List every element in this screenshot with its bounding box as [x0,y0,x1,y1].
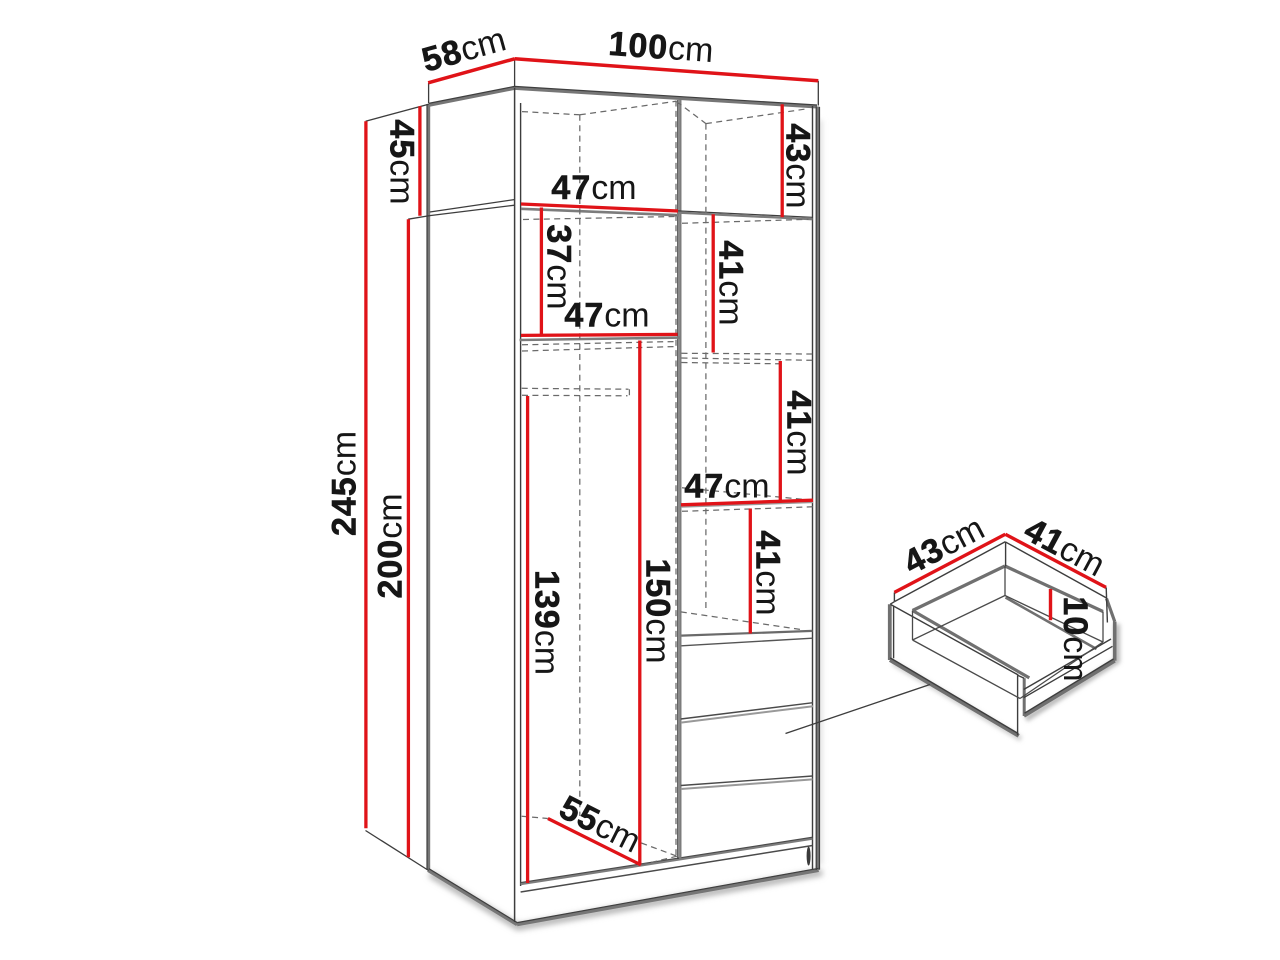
svg-text:41cm: 41cm [712,240,750,325]
svg-text:41cm: 41cm [780,390,818,475]
svg-text:47cm: 47cm [551,169,636,207]
svg-text:43cm: 43cm [779,123,817,208]
svg-text:200cm: 200cm [371,493,409,598]
svg-text:139cm: 139cm [528,570,566,675]
svg-text:100cm: 100cm [607,25,714,70]
svg-text:47cm: 47cm [684,468,769,506]
svg-text:150cm: 150cm [639,558,677,663]
svg-text:41cm: 41cm [749,530,787,615]
svg-text:10cm: 10cm [1056,596,1094,681]
svg-text:45cm: 45cm [383,119,421,204]
svg-text:47cm: 47cm [564,297,649,335]
svg-text:245cm: 245cm [326,431,364,536]
